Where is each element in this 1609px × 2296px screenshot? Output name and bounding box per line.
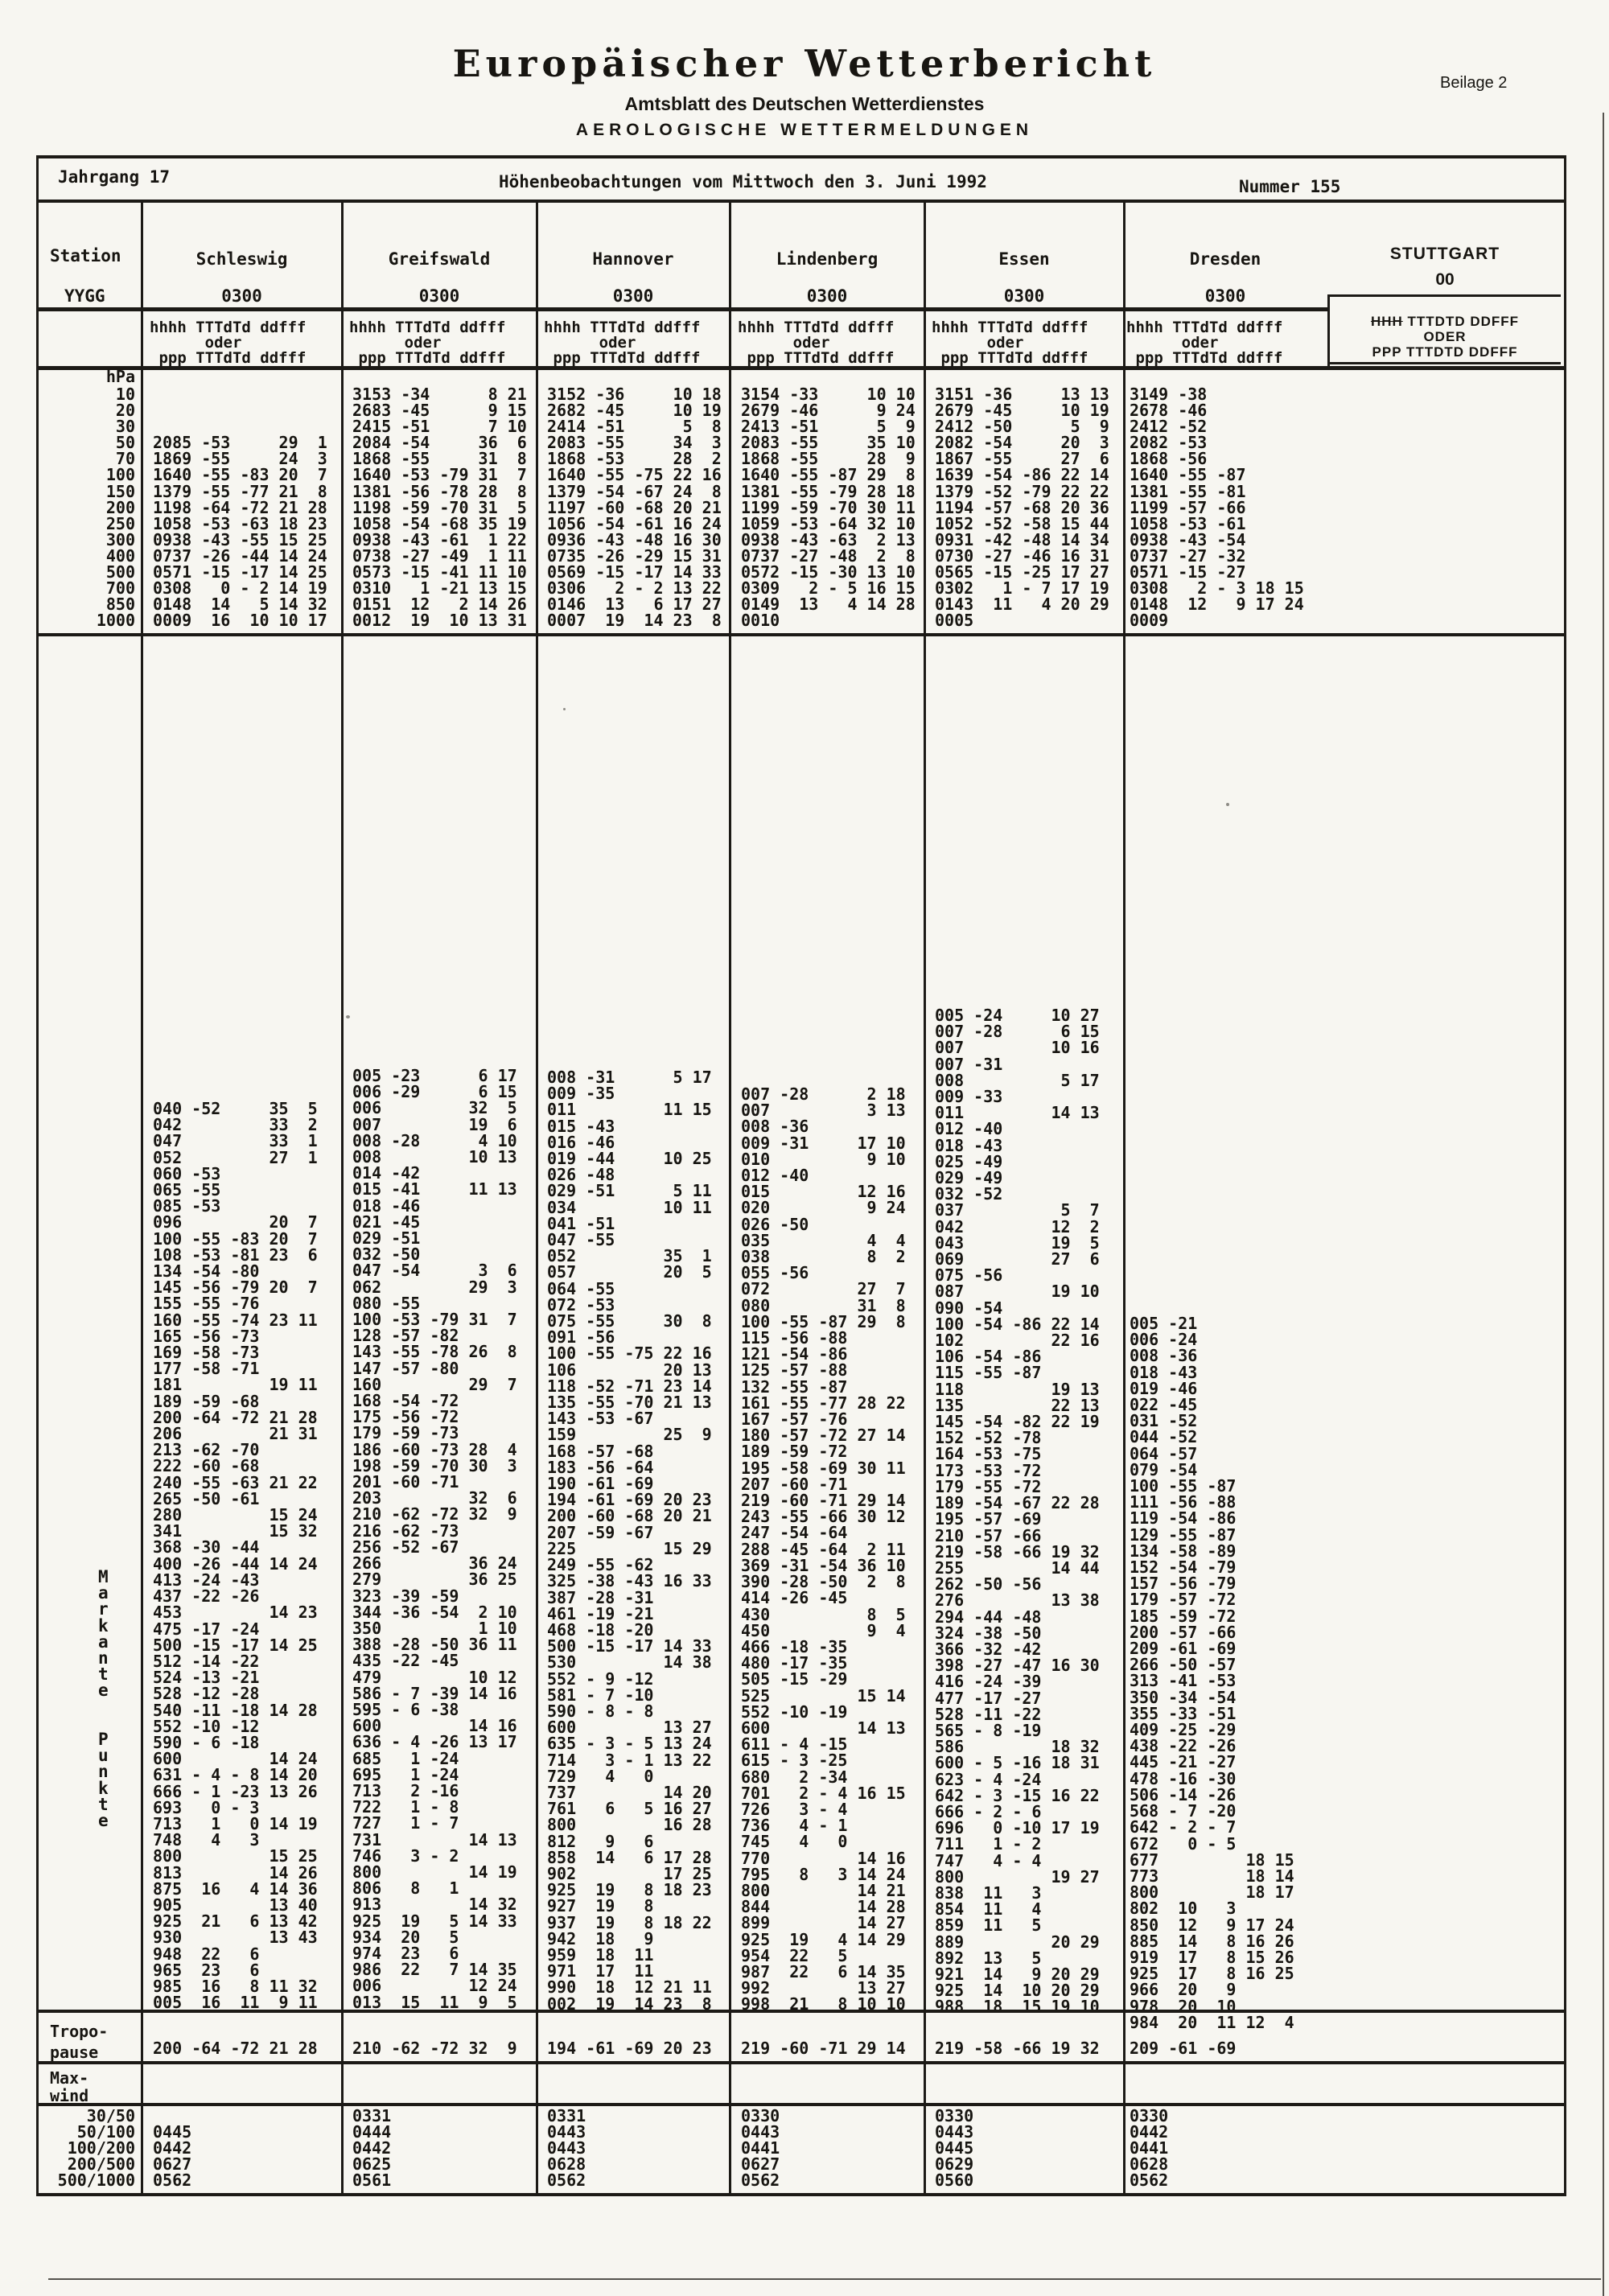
tropopause-divider-top [36,2010,1566,2013]
stuttgart-divider-top [1329,294,1561,297]
maxwind-range-labels: 30/50 50/100 100/200 200/500 500/1000 [40,2108,135,2188]
maxwind-greifswald: 0331 0444 0442 0625 0561 [352,2108,391,2188]
frame-left-border [36,155,39,2195]
obs-time-dresden: 0300 [1125,286,1326,306]
tropopause-hannover: 194 -61 -69 20 23 [547,2040,712,2056]
sig-data-greifswald: 005 -23 6 17 006 -29 6 15 006 32 5 007 1… [352,1068,517,2010]
stuttgart-stamp-line3: PPP TTTDTD DDFFF [1329,344,1561,360]
sig-data-lindenberg: 007 -28 2 18 007 3 13 008 -36 009 -31 17… [741,1086,906,2013]
stuttgart-stamp-line2: ODER [1329,329,1561,345]
beilage-label: Beilage 2 [1440,74,1507,93]
frame-bottom-border [36,2193,1566,2196]
maxwind-lindenberg: 0330 0443 0441 0627 0562 [741,2108,780,2188]
obs-time-greifswald: 0300 [343,286,536,306]
column-separator [1123,200,1125,2193]
pressure-data-essen: 3151 -36 13 13 2679 -45 10 19 2412 -50 5… [935,386,1109,628]
sig-data-dresden: 005 -21 006 -24 008 -36 018 -43 019 -46 … [1130,1315,1294,2031]
column-separator [729,200,731,2193]
stuttgart-divider-bottom [1329,362,1561,364]
format-header-schleswig: hhhh TTTdTd ddfff oder ppp TTTdTd ddfff [150,320,306,366]
tropopause-essen: 219 -58 -66 19 32 [935,2040,1100,2056]
maxwind-essen: 0330 0443 0445 0629 0560 [935,2108,973,2188]
obs-time-lindenberg: 0300 [730,286,924,306]
station-header-stuttgart: STUTTGART [1329,245,1561,264]
tropopause-divider-bottom [36,2061,1566,2064]
yygg-label: YYGG [64,286,137,306]
maxwind-divider [36,2103,1566,2106]
station-header-lindenberg: Lindenberg [730,249,924,269]
pressure-level-labels: 10 20 30 50 70 100 150 200 250 300 400 5… [40,386,135,628]
jahrgang-label: Jahrgang 17 [58,167,170,187]
obs-time-schleswig: 0300 [142,286,341,306]
hpa-unit-label: hPa [40,367,135,386]
station-header-schleswig: Schleswig [142,249,341,269]
pressure-data-schleswig: 2085 -53 29 1 1869 -55 24 3 1640 -55 -83… [153,386,327,628]
column-separator [536,200,538,2193]
pressure-table-divider [36,633,1566,636]
obs-time-hannover: 0300 [537,286,729,306]
maxwind-hannover: 0331 0443 0443 0628 0562 [547,2108,586,2188]
stamp-ttdtd: TTTDTD DDFFF [1403,314,1519,329]
sig-data-hannover: 008 -31 5 17 009 -35 011 11 15 015 -43 0… [547,1069,712,2012]
column-separator [141,200,143,2193]
document-page: Europäischer Wetterbericht Amtsblatt des… [0,0,1609,2296]
maxwind-dresden: 0330 0442 0441 0628 0562 [1130,2108,1168,2188]
pressure-data-dresden: 3149 -38 2678 -46 2412 -52 2082 -53 1868… [1130,386,1304,628]
tropopause-label: Tropo- pause [50,2021,108,2063]
stamp-hhh: HHH [1371,314,1403,329]
maxwind-schleswig: 0445 0442 0627 0562 [153,2108,191,2188]
sig-data-essen: 005 -24 10 27 007 -28 6 15 007 10 16 007… [935,1007,1100,2015]
format-header-greifswald: hhhh TTTdTd ddfff oder ppp TTTdTd ddfff [349,320,505,366]
frame-top-border [36,155,1566,158]
tropopause-dresden: 209 -61 -69 [1130,2040,1236,2056]
format-header-dresden: hhhh TTTdTd ddfff oder ppp TTTdTd ddfff [1126,320,1282,366]
page-bottom-scan-edge [48,2278,1601,2280]
sig-data-schleswig: 040 -52 35 5 042 33 2 047 33 1 052 27 1 … [153,1101,318,2010]
pressure-data-greifswald: 3153 -34 8 21 2683 -45 9 15 2415 -51 7 1… [352,386,527,628]
pressure-data-lindenberg: 3154 -33 10 10 2679 -46 9 24 2413 -51 5 … [741,386,916,628]
format-header-divider [36,366,1566,370]
nummer-label: Nummer 155 [1239,177,1340,196]
column-separator [924,200,926,2193]
obs-time-stuttgart: 00 [1329,270,1561,290]
frame-right-border [1564,155,1566,2195]
format-header-essen: hhhh TTTdTd ddfff oder ppp TTTdTd ddfff [932,320,1088,366]
format-header-lindenberg: hhhh TTTdTd ddfff oder ppp TTTdTd ddfff [738,320,894,366]
observation-title: Höhenbeobachtungen vom Mittwoch den 3. J… [499,172,987,191]
tropopause-schleswig: 200 -64 -72 21 28 [153,2040,318,2056]
side-label-markante-punkte: M a r k a n t e P u n k t e [98,1569,109,1829]
station-column-label: Station [50,246,138,265]
section-title: AEROLOGISCHE WETTERMELDUNGEN [0,121,1609,140]
pressure-data-hannover: 3152 -36 10 18 2682 -45 10 19 2414 -51 5… [547,386,722,628]
station-header-greifswald: Greifswald [343,249,536,269]
station-header-essen: Essen [925,249,1123,269]
tropopause-lindenberg: 219 -60 -71 29 14 [741,2040,906,2056]
maxwind-label: Max- wind [50,2069,88,2105]
page-subtitle: Amtsblatt des Deutschen Wetterdienstes [0,93,1609,115]
stuttgart-stamp-line1: HHH TTTDTD DDFFF [1329,314,1561,330]
station-header-dresden: Dresden [1125,249,1326,269]
format-header-hannover: hhhh TTTdTd ddfff oder ppp TTTdTd ddfff [544,320,700,366]
column-separator [341,200,344,2193]
obs-time-essen: 0300 [925,286,1123,306]
masthead-divider [36,200,1566,203]
tropopause-greifswald: 210 -62 -72 32 9 [352,2040,517,2056]
station-header-hannover: Hannover [537,249,729,269]
page-title: Europäischer Wetterbericht [0,42,1609,85]
header-divider [36,307,1327,311]
page-right-scan-edge [1603,113,1604,2296]
